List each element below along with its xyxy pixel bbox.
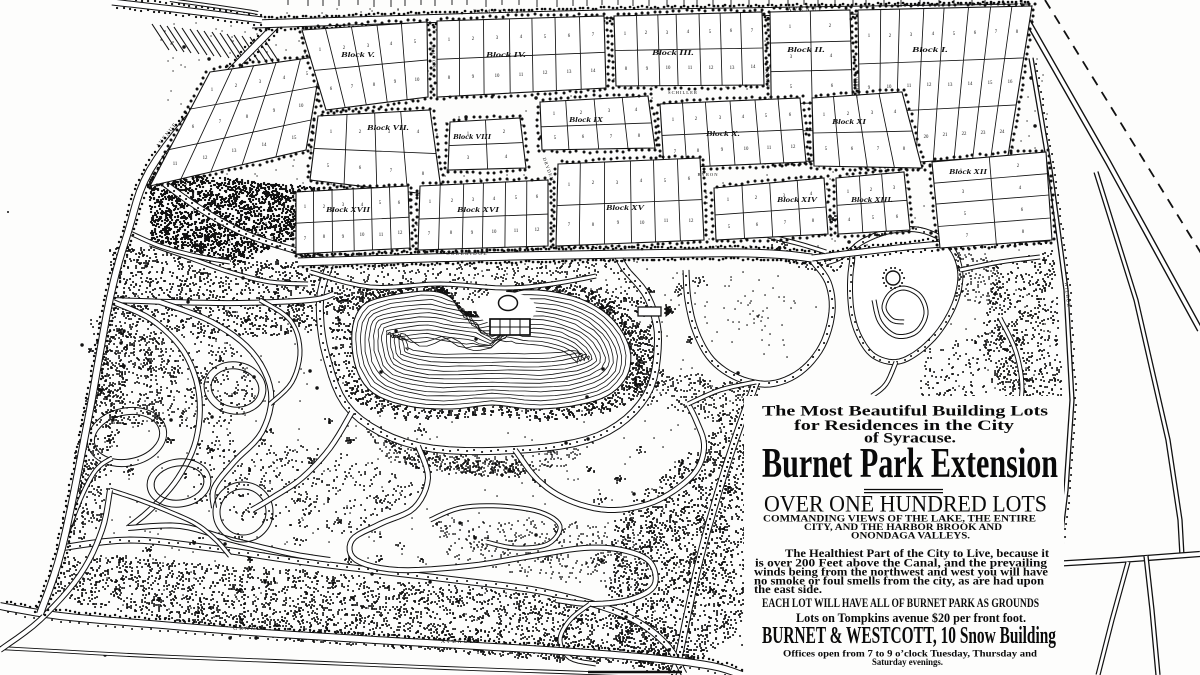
svg-text:10: 10	[492, 230, 497, 235]
svg-text:EACH LOT WILL HAVE ALL OF BURN: EACH LOT WILL HAVE ALL OF BURNET PARK AS…	[762, 596, 1039, 610]
svg-text:the east side.: the east side.	[754, 584, 822, 596]
svg-text:12: 12	[398, 231, 403, 236]
svg-text:10: 10	[415, 78, 420, 83]
svg-text:SCHILLER: SCHILLER	[668, 90, 698, 95]
svg-text:Block XI: Block XI	[831, 118, 867, 126]
svg-text:14: 14	[591, 69, 596, 74]
svg-text:Burnet Park Extension: Burnet Park Extension	[762, 441, 1058, 487]
svg-text:15: 15	[292, 136, 297, 141]
svg-text:Block I.: Block I.	[910, 46, 948, 54]
svg-text:BYRON: BYRON	[697, 172, 718, 177]
svg-text:16: 16	[1008, 80, 1013, 85]
svg-text:12: 12	[689, 219, 694, 224]
svg-text:GRAND: GRAND	[233, 626, 263, 632]
svg-text:Block IV.: Block IV.	[485, 51, 527, 59]
svg-text:Block XII: Block XII	[948, 168, 988, 176]
svg-text:11: 11	[664, 219, 669, 224]
svg-text:Block XIII.: Block XIII.	[850, 196, 894, 204]
svg-text:21: 21	[943, 133, 948, 138]
svg-text:15: 15	[988, 81, 993, 86]
svg-text:Block II.: Block II.	[786, 46, 826, 54]
svg-text:11: 11	[767, 146, 772, 151]
svg-text:11: 11	[907, 84, 912, 89]
svg-text:Block XVII: Block XVII	[325, 206, 371, 214]
svg-text:13: 13	[567, 70, 572, 75]
svg-text:Block VII.: Block VII.	[366, 124, 410, 132]
svg-text:Block IX: Block IX	[568, 116, 604, 124]
svg-text:24: 24	[1000, 130, 1005, 135]
svg-text:Saturday evenings.: Saturday evenings.	[872, 657, 943, 667]
svg-text:23: 23	[981, 131, 986, 136]
svg-text:Block XVI: Block XVI	[456, 206, 500, 214]
svg-text:11: 11	[519, 73, 524, 78]
svg-text:OVER ONE HUNDRED LOTS: OVER ONE HUNDRED LOTS	[764, 492, 1047, 517]
svg-text:12: 12	[543, 71, 548, 76]
svg-text:10: 10	[299, 104, 304, 109]
svg-text:10: 10	[666, 66, 671, 71]
svg-text:ONONDAGA VALLEYS.: ONONDAGA VALLEYS.	[851, 532, 970, 542]
svg-text:Block VIII: Block VIII	[452, 133, 492, 141]
svg-text:10: 10	[640, 221, 645, 226]
svg-text:14: 14	[968, 82, 973, 87]
svg-text:10: 10	[495, 74, 500, 79]
svg-text:Block XIV: Block XIV	[776, 196, 819, 204]
svg-text:Block V.: Block V.	[340, 51, 376, 59]
svg-text:Block X.: Block X.	[705, 130, 741, 138]
svg-text:22: 22	[962, 132, 967, 137]
svg-text:13: 13	[232, 149, 237, 154]
svg-text:13: 13	[730, 66, 735, 71]
svg-text:13: 13	[948, 83, 953, 88]
svg-text:11: 11	[173, 162, 178, 167]
svg-text:12: 12	[927, 83, 932, 88]
svg-text:12: 12	[203, 156, 208, 161]
svg-text:Block III.: Block III.	[651, 49, 695, 57]
svg-text:11: 11	[688, 66, 693, 71]
svg-text:14: 14	[262, 143, 267, 148]
svg-text:12: 12	[791, 145, 796, 150]
svg-text:12: 12	[535, 228, 540, 233]
svg-text:10: 10	[360, 233, 365, 238]
svg-text:14: 14	[751, 65, 756, 70]
svg-text:BURNET & WESTCOTT, 10 Snow Bui: BURNET & WESTCOTT, 10 Snow Building	[762, 623, 1056, 649]
svg-text:Block XV: Block XV	[605, 204, 646, 212]
svg-text:11: 11	[379, 233, 384, 238]
svg-text:12: 12	[709, 66, 714, 71]
svg-text:AVENUE: AVENUE	[441, 639, 475, 645]
svg-text:11: 11	[514, 229, 519, 234]
svg-text:20: 20	[924, 135, 929, 140]
svg-text:10: 10	[744, 147, 749, 152]
svg-text:TOMPKINS: TOMPKINS	[473, 9, 521, 15]
